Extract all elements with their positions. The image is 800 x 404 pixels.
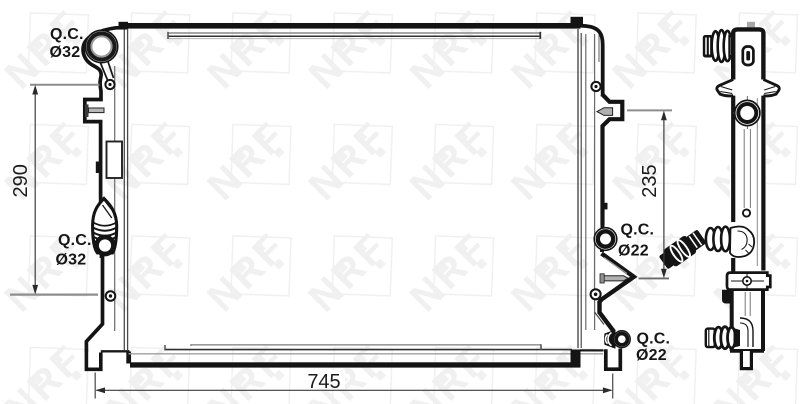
svg-text:Ø22: Ø22: [636, 347, 667, 364]
svg-text:Q.C.: Q.C.: [58, 232, 92, 249]
svg-text:Q.C.: Q.C.: [50, 26, 84, 43]
svg-text:Ø32: Ø32: [56, 252, 87, 269]
svg-text:Ø32: Ø32: [50, 44, 81, 61]
svg-text:Q.C.: Q.C.: [637, 330, 671, 347]
svg-text:Ø22: Ø22: [618, 242, 649, 259]
svg-text:290: 290: [10, 164, 32, 197]
svg-text:Q.C.: Q.C.: [621, 222, 655, 239]
svg-text:235: 235: [639, 164, 661, 197]
svg-text:745: 745: [307, 371, 340, 393]
